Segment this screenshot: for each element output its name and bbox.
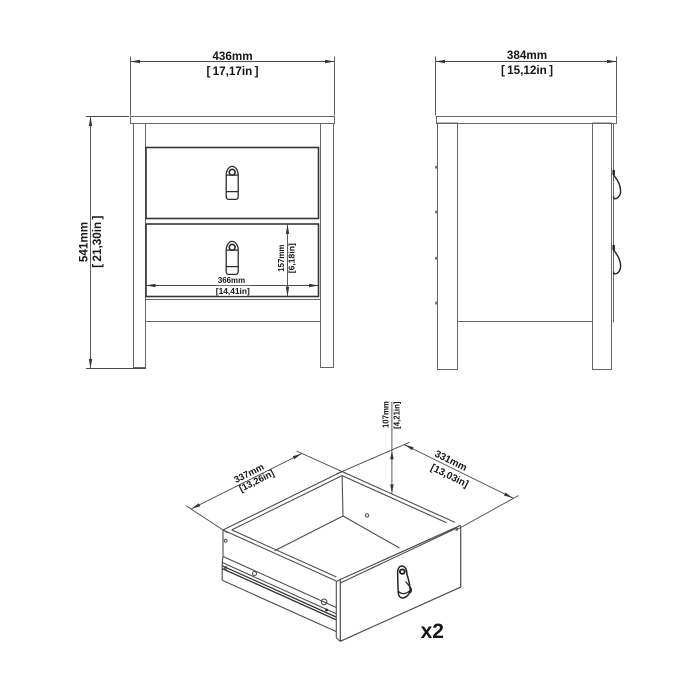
svg-text:541mm: 541mm: [77, 222, 90, 262]
svg-text:[6,18in]: [6,18in]: [287, 243, 297, 273]
svg-text:384mm: 384mm: [507, 49, 547, 62]
svg-text:x2: x2: [421, 620, 444, 643]
svg-text:366mm: 366mm: [218, 276, 245, 285]
svg-text:[ 17,17in ]: [ 17,17in ]: [206, 65, 258, 78]
svg-text:[ 15,12in ]: [ 15,12in ]: [501, 64, 553, 77]
svg-text:[ 21,30in ]: [ 21,30in ]: [91, 216, 104, 268]
svg-text:107mm: 107mm: [382, 401, 391, 428]
svg-text:[4,21in]: [4,21in]: [393, 401, 402, 429]
svg-text:436mm: 436mm: [212, 50, 252, 63]
svg-text:[14,41in]: [14,41in]: [216, 286, 250, 296]
svg-text:157mm: 157mm: [277, 245, 286, 272]
